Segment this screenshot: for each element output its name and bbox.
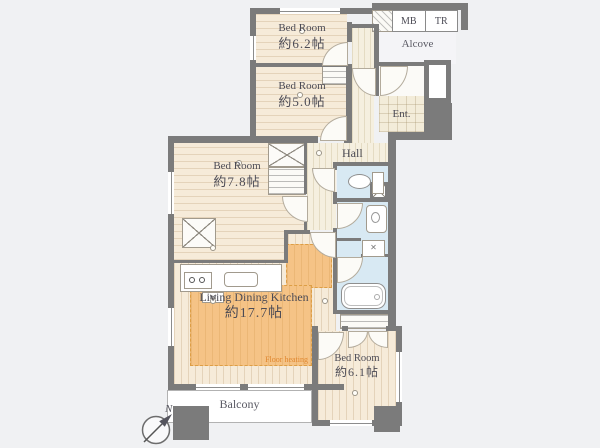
detector-dot: [210, 245, 216, 251]
kitchen-sink-icon: [224, 272, 258, 287]
bathtub-icon: [341, 283, 386, 309]
pillar-box: [424, 60, 451, 103]
hall-label: Hall: [342, 146, 363, 161]
wall-washroom-bottom: [333, 238, 361, 241]
wall-toilet-top: [333, 162, 388, 166]
room-area: 約17.7帖: [178, 305, 330, 323]
room-area: 約6.2帖: [256, 36, 348, 52]
ldk-label: Living Dining Kitchen 約17.7帖: [178, 290, 330, 323]
toilet-tank-icon: [372, 172, 384, 194]
wall-entrance-step: [388, 132, 452, 140]
alcove-label: Alcove: [379, 38, 456, 50]
floorplan-page: { "plan": { "type": "apartment-floor-pla…: [0, 0, 600, 448]
trunk-room-label: TR: [425, 11, 458, 31]
window-ldk-balcony-2: [248, 384, 304, 390]
bedroom-a-label: Bed Room 約6.2帖: [256, 22, 348, 52]
room-area: 約5.0帖: [256, 94, 348, 110]
compass-north-label: N: [164, 403, 173, 415]
window-ldk-balcony-1: [196, 384, 240, 390]
detector-dot: [316, 150, 322, 156]
room-name: Living Dining Kitchen: [178, 290, 330, 305]
window-ldk-left: [168, 308, 174, 346]
wall-bedroom-c-bottom: [168, 260, 288, 263]
wall-mbtr-right: [461, 3, 468, 30]
wall-right-column: [388, 140, 396, 330]
room-area: 約6.1帖: [318, 365, 396, 380]
washbasin-icon: [366, 205, 387, 233]
bedroom-d-label: Bed Room 約6.1帖: [318, 352, 396, 380]
wall-entrance-right: [424, 103, 452, 133]
wall-bedroom-c-right-a: [304, 140, 307, 194]
stove-icon: [184, 272, 212, 289]
window-bedroom-c-left: [168, 172, 174, 214]
washing-machine-icon: ✕: [362, 240, 385, 257]
detector-dot: [352, 390, 358, 396]
wall-ldk-stub: [284, 230, 288, 262]
room-name: Bed Room: [256, 80, 348, 94]
room-name: Bed Room: [256, 22, 348, 36]
room-area: 約7.8帖: [176, 174, 298, 190]
room-name: Bed Room: [176, 160, 298, 174]
wall-mbtr-top: [372, 3, 468, 10]
wall-mid-band-a: [168, 136, 318, 143]
wall-bedroom-c-right-b: [304, 222, 307, 232]
bedroom-c-label: Bed Room 約7.8帖: [176, 160, 298, 190]
window-bedroom-d-right: [396, 352, 402, 402]
wall-bath-bottom: [333, 310, 388, 314]
window-bedroom-a-top: [280, 8, 340, 14]
floor-heating-label: Floor heating: [210, 355, 308, 364]
room-name: Bed Room: [318, 352, 396, 365]
window-bedroom-d-bottom: [330, 420, 372, 426]
meter-box-label: MB: [393, 11, 425, 31]
closet-bedroom-c: [182, 218, 216, 248]
bedroom-b-label: Bed Room 約5.0帖: [256, 80, 348, 110]
balcony-label: Balcony: [167, 397, 312, 412]
wall-balcony-right-block: [374, 406, 400, 432]
compass-icon: N: [134, 396, 182, 448]
toilet-bowl-icon: [348, 174, 371, 189]
entrance-label: Ent.: [379, 108, 424, 120]
meter-trunk-box: MB TR: [392, 10, 458, 32]
